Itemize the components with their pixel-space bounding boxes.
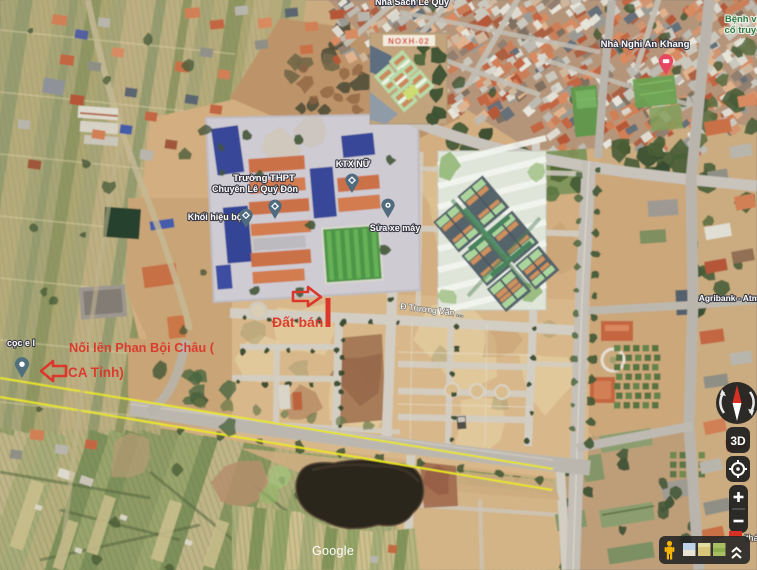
svg-text:KTX NỮ: KTX NỮ: [336, 159, 371, 169]
svg-text:3D: 3D: [730, 434, 746, 448]
svg-text:Chuyên Lê Quý Đôn: Chuyên Lê Quý Đôn: [212, 184, 298, 194]
svg-text:Nhà Sách Lê Quý: Nhà Sách Lê Quý: [375, 0, 449, 7]
svg-text:Trường THPT: Trường THPT: [233, 173, 295, 184]
svg-text:Khối hiệu bộ: Khối hiệu bộ: [188, 212, 243, 222]
svg-text:cọc e l: cọc e l: [7, 338, 35, 348]
svg-text:Bệnh vi: Bệnh vi: [725, 14, 757, 25]
svg-text:Agribank - Atm: Agribank - Atm: [699, 293, 757, 303]
svg-text:Google: Google: [312, 544, 354, 558]
svg-text:cổ truyề: cổ truyề: [725, 25, 757, 36]
svg-text:CA Tỉnh): CA Tỉnh): [68, 365, 124, 380]
svg-text:Sửa xe máy: Sửa xe máy: [370, 223, 421, 233]
svg-text:Đất bán: Đất bán: [272, 314, 323, 330]
svg-text:Nối lên Phan Bội Châu (: Nối lên Phan Bội Châu (: [69, 340, 215, 355]
svg-text:Nhà Nghỉ An Khang: Nhà Nghỉ An Khang: [601, 39, 690, 50]
